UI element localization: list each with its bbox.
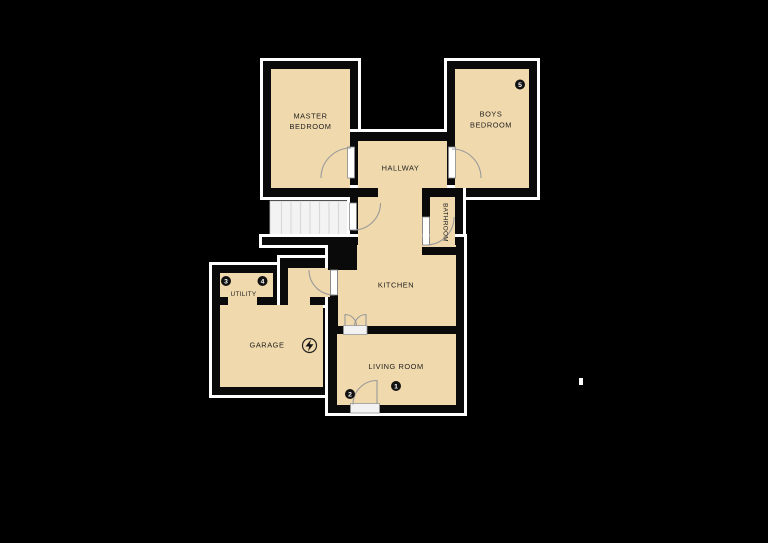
label-boys-bedroom-line1: BOYS: [480, 110, 503, 119]
label-garage: GARAGE: [250, 341, 285, 350]
label-master-bedroom-line1: MASTER: [293, 112, 327, 121]
corridor-floor: [358, 188, 422, 252]
svg-text:4: 4: [261, 278, 265, 285]
small-white-mark: [579, 378, 583, 385]
marker-4: 4: [258, 276, 268, 286]
stairs: [270, 201, 353, 235]
floor-plan: MASTER BEDROOM BOYS BEDROOM HALLWAY BATH…: [0, 0, 768, 543]
label-hallway: HALLWAY: [382, 164, 420, 173]
svg-text:1: 1: [394, 383, 398, 390]
marker-2: 2: [345, 389, 355, 399]
label-utility: UTILITY: [231, 291, 257, 298]
marker-3: 3: [221, 276, 231, 286]
label-bathroom: BATHROOM: [442, 203, 449, 242]
svg-text:3: 3: [224, 278, 228, 285]
label-kitchen: KITCHEN: [378, 281, 414, 290]
label-boys-bedroom-line2: BEDROOM: [470, 121, 512, 130]
lobby-garage-passage-floor: [288, 297, 310, 305]
label-living-room: LIVING ROOM: [368, 362, 423, 371]
marker-1: 1: [391, 381, 401, 391]
svg-text:5: 5: [518, 82, 522, 89]
svg-text:2: 2: [348, 391, 352, 398]
floor-plan-canvas: MASTER BEDROOM BOYS BEDROOM HALLWAY BATH…: [0, 0, 768, 543]
label-master-bedroom-line2: BEDROOM: [289, 122, 331, 131]
marker-5: 5: [515, 80, 525, 90]
